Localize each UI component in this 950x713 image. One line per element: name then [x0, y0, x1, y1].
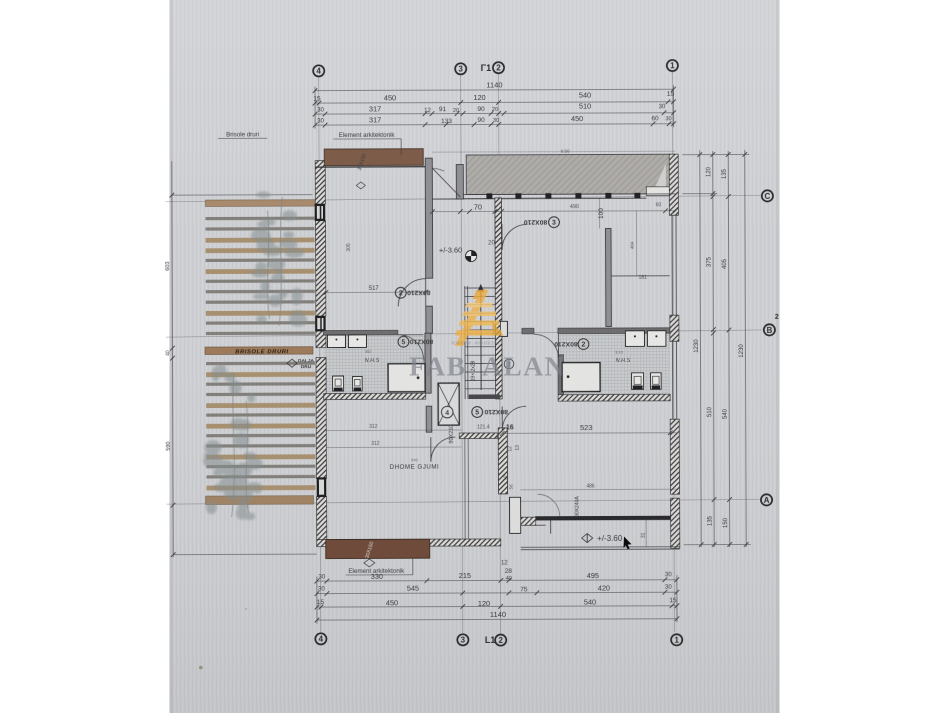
- svg-text:486: 486: [586, 484, 595, 490]
- svg-text:420: 420: [598, 583, 610, 592]
- svg-text:12: 12: [424, 108, 431, 114]
- svg-text:305: 305: [346, 243, 352, 252]
- svg-text:510: 510: [707, 406, 713, 417]
- svg-text:5: 5: [401, 339, 405, 346]
- svg-text:1140: 1140: [486, 80, 502, 89]
- svg-text:DALJA: DALJA: [298, 358, 315, 364]
- svg-text:60: 60: [651, 115, 659, 122]
- svg-text:20: 20: [488, 240, 495, 246]
- svg-text:4: 4: [316, 67, 321, 76]
- svg-text:30: 30: [317, 108, 324, 114]
- svg-text:19×.2x28: 19×.2x28: [471, 360, 477, 381]
- svg-text:31: 31: [641, 532, 647, 538]
- svg-text:90X240A: 90X240A: [575, 496, 581, 517]
- svg-text:590: 590: [166, 442, 172, 451]
- svg-text:DHOME GJUMI: DHOME GJUMI: [390, 464, 440, 471]
- svg-text:3: 3: [552, 220, 556, 227]
- svg-text:28: 28: [505, 568, 513, 575]
- svg-text:404: 404: [630, 241, 635, 249]
- svg-text:2: 2: [775, 314, 779, 321]
- svg-text:30: 30: [493, 118, 499, 124]
- svg-text:100: 100: [598, 208, 605, 219]
- svg-text:Element arkitektonik: Element arkitektonik: [339, 132, 396, 139]
- svg-text:495: 495: [587, 571, 599, 580]
- svg-text:80X210: 80X210: [524, 218, 548, 225]
- svg-text:13: 13: [515, 445, 521, 451]
- svg-text:120: 120: [473, 93, 485, 102]
- svg-text:4: 4: [445, 410, 449, 417]
- svg-text:Brisole druri: Brisole druri: [226, 131, 259, 138]
- svg-text:20: 20: [492, 107, 498, 113]
- svg-text:1140: 1140: [490, 610, 506, 619]
- svg-text:317: 317: [369, 115, 381, 124]
- svg-text:450: 450: [571, 114, 583, 123]
- svg-text:30: 30: [318, 587, 325, 593]
- svg-text:15: 15: [317, 599, 325, 606]
- svg-text:181: 181: [639, 275, 648, 281]
- svg-text:121.4: 121.4: [477, 424, 490, 430]
- svg-text:120: 120: [706, 166, 712, 177]
- svg-text:603: 603: [165, 262, 171, 271]
- svg-text:540: 540: [579, 91, 591, 100]
- svg-text:375: 375: [707, 256, 713, 267]
- svg-text:90X210: 90X210: [449, 425, 455, 444]
- svg-text:8.50: 8.50: [561, 149, 570, 154]
- svg-text:30: 30: [659, 104, 666, 110]
- svg-text:1: 1: [670, 61, 675, 70]
- svg-text:30: 30: [317, 119, 324, 125]
- svg-text:NDERTIM · PROJEKTIM: NDERTIM · PROJEKTIM: [450, 341, 500, 346]
- svg-text:56: 56: [508, 484, 513, 490]
- svg-text:80X210: 80X210: [484, 408, 508, 415]
- svg-text:DRU: DRU: [301, 364, 312, 370]
- svg-text:BRISOLE DRURI: BRISOLE DRURI: [235, 349, 289, 355]
- svg-text:523: 523: [580, 423, 593, 432]
- svg-text:91: 91: [439, 106, 447, 113]
- svg-text:3: 3: [461, 636, 466, 645]
- svg-text:N.H.S: N.H.S: [365, 358, 380, 364]
- svg-text:+/-3.60: +/-3.60: [597, 534, 623, 543]
- svg-text:150: 150: [723, 517, 729, 528]
- svg-text:40: 40: [165, 350, 171, 356]
- svg-text:70: 70: [474, 202, 482, 211]
- svg-text:90: 90: [477, 117, 485, 124]
- svg-text:N.H.S: N.H.S: [616, 358, 631, 364]
- svg-text:510: 510: [579, 102, 591, 111]
- svg-text:L1: L1: [485, 635, 496, 645]
- svg-text:80X210: 80X210: [554, 340, 578, 347]
- svg-text:15: 15: [669, 597, 677, 604]
- svg-text:450: 450: [384, 93, 396, 102]
- svg-text:20: 20: [453, 108, 459, 114]
- svg-text:15: 15: [313, 96, 321, 103]
- svg-text:317: 317: [369, 104, 381, 113]
- svg-text:4: 4: [319, 635, 324, 644]
- svg-text:540: 540: [723, 408, 729, 419]
- svg-text:312: 312: [369, 424, 378, 430]
- svg-text:1230: 1230: [739, 344, 745, 358]
- svg-text:30: 30: [666, 116, 672, 122]
- svg-text:+/-3.60: +/-3.60: [439, 246, 462, 255]
- svg-text:B: B: [766, 326, 772, 335]
- svg-text:312: 312: [371, 441, 380, 447]
- svg-text:16: 16: [506, 424, 514, 431]
- svg-text:490: 490: [570, 204, 579, 210]
- svg-text:215: 215: [459, 571, 471, 580]
- svg-text:30: 30: [665, 585, 672, 591]
- svg-text:12: 12: [507, 446, 513, 452]
- svg-text:12: 12: [501, 560, 508, 566]
- svg-text:5: 5: [475, 410, 479, 417]
- svg-text:C: C: [764, 192, 770, 201]
- svg-text:120: 120: [478, 599, 490, 608]
- svg-text:80X210: 80X210: [409, 338, 433, 345]
- svg-text:135: 135: [722, 168, 728, 179]
- svg-text:3: 3: [458, 65, 463, 74]
- svg-text:2: 2: [399, 290, 403, 297]
- svg-text:1: 1: [674, 636, 679, 645]
- svg-text:A: A: [764, 496, 770, 505]
- svg-text:135: 135: [708, 515, 714, 526]
- svg-text:2: 2: [496, 64, 501, 73]
- svg-text:540: 540: [411, 457, 418, 462]
- svg-text:3.10: 3.10: [615, 349, 624, 354]
- svg-text:15: 15: [667, 91, 675, 98]
- svg-text:ALAN: ALAN: [482, 351, 566, 382]
- svg-text:Γ1: Γ1: [481, 63, 491, 73]
- svg-text:302: 302: [365, 349, 372, 354]
- svg-text:2: 2: [498, 636, 503, 645]
- svg-text:405: 405: [722, 258, 728, 269]
- svg-text:540: 540: [584, 598, 596, 607]
- svg-text:90: 90: [477, 106, 485, 113]
- svg-text:30: 30: [318, 575, 325, 581]
- svg-text:10: 10: [502, 475, 507, 481]
- svg-text:2: 2: [581, 342, 585, 349]
- svg-text:75: 75: [520, 586, 528, 593]
- svg-text:FAB: FAB: [409, 351, 466, 382]
- svg-text:545: 545: [407, 584, 419, 593]
- svg-text:517: 517: [369, 286, 380, 292]
- svg-text:1230: 1230: [694, 339, 700, 353]
- svg-text:30: 30: [665, 572, 672, 578]
- svg-text:133: 133: [441, 118, 452, 125]
- svg-text:Element arkitektonik: Element arkitektonik: [348, 568, 405, 575]
- svg-text:60: 60: [656, 202, 662, 208]
- svg-text:450: 450: [386, 598, 398, 607]
- svg-text:40: 40: [506, 576, 512, 582]
